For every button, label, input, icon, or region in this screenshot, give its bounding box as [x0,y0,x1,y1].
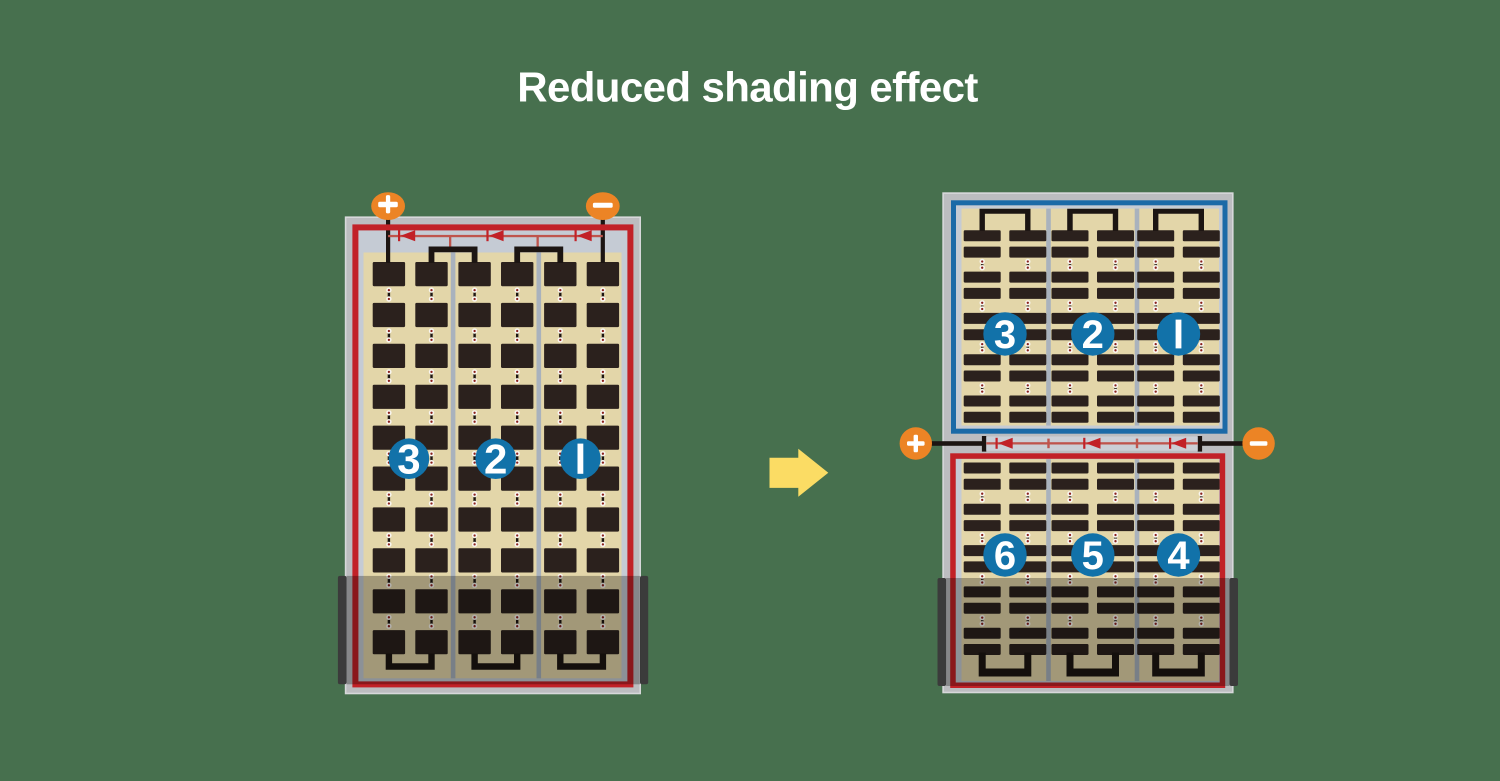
svg-text:5: 5 [1082,534,1104,578]
svg-text:3: 3 [994,313,1016,357]
svg-text:2: 2 [484,436,507,483]
svg-text:4: 4 [1167,534,1190,578]
svg-text:Reduced shading effect: Reduced shading effect [517,64,978,111]
svg-text:6: 6 [994,534,1016,578]
svg-text:2: 2 [1082,313,1104,357]
svg-text:3: 3 [397,436,420,483]
